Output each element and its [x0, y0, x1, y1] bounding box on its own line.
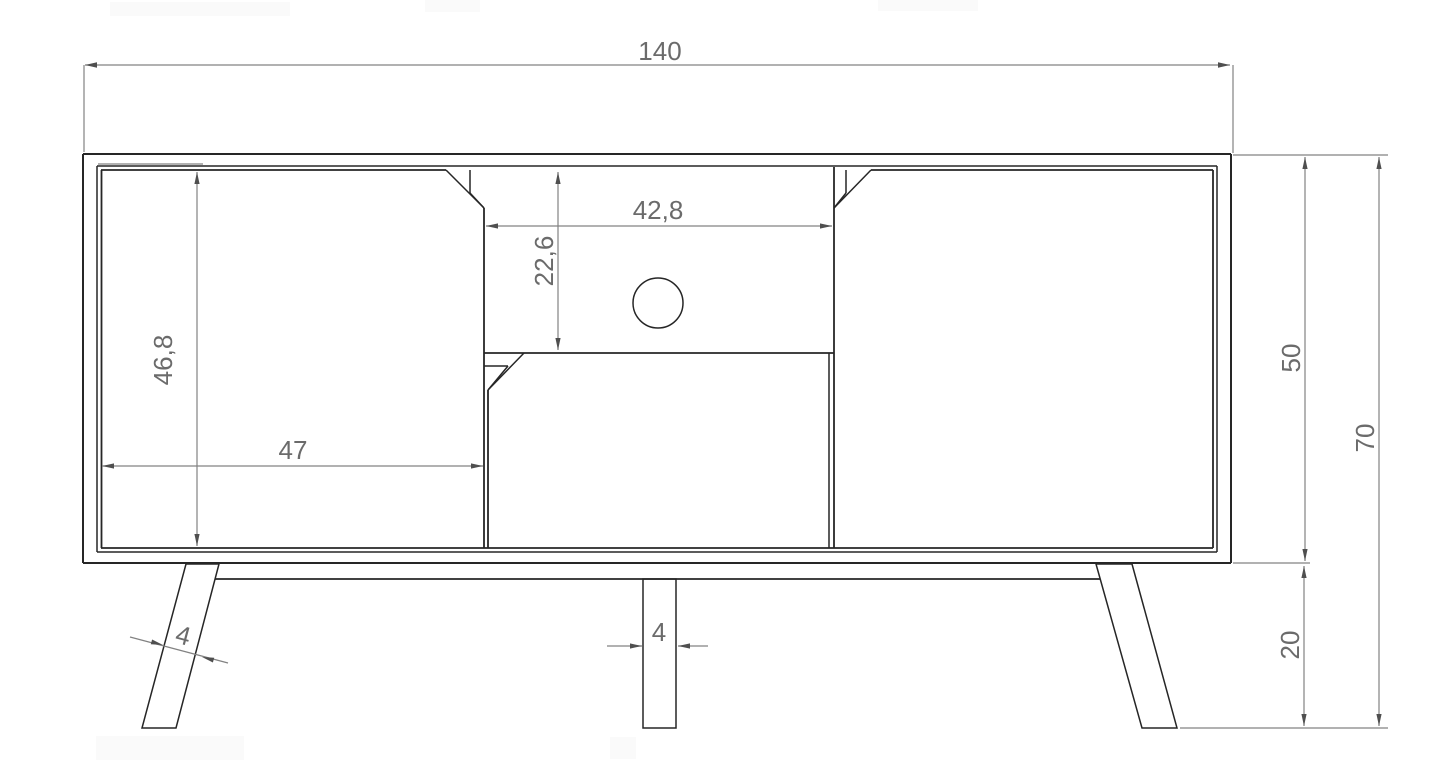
middle-niche-and-drawer: [484, 278, 834, 548]
right-door: [834, 167, 1213, 548]
dim-total-width: 140: [84, 36, 1233, 153]
dim-niche-width: 42,8: [486, 195, 832, 229]
dim-label-niche-height: 22,6: [529, 236, 559, 287]
cable-hole: [633, 278, 683, 328]
dim-label-center-leg-width: 4: [652, 617, 666, 647]
dim-left-door-height: 46,8: [98, 164, 203, 546]
dim-left-leg-width: 4: [130, 619, 228, 663]
center-leg: [643, 579, 676, 728]
scan-artifacts: [96, 0, 978, 760]
dim-center-leg-width: 4: [607, 617, 708, 649]
dim-label-niche-width: 42,8: [633, 195, 684, 225]
dim-label-leg-height: 20: [1275, 631, 1305, 660]
technical-drawing: 140 46,8 47 42,8 22,6: [0, 0, 1446, 762]
dim-left-door-width: 47: [102, 435, 483, 469]
dim-label-left-door-width: 47: [279, 435, 308, 465]
dim-body-height: 50: [1233, 155, 1388, 563]
dim-label-body-height: 50: [1276, 344, 1306, 373]
dim-leg-height: 20: [1275, 566, 1307, 726]
right-leg: [1096, 564, 1177, 728]
dim-label-left-door-height: 46,8: [148, 335, 178, 386]
dim-label-left-leg-width: 4: [172, 619, 194, 652]
drawing-canvas: 140 46,8 47 42,8 22,6: [0, 0, 1446, 762]
dim-niche-height: 22,6: [529, 172, 561, 350]
dim-label-total-height: 70: [1350, 424, 1380, 453]
dim-label-total-width: 140: [638, 36, 681, 66]
